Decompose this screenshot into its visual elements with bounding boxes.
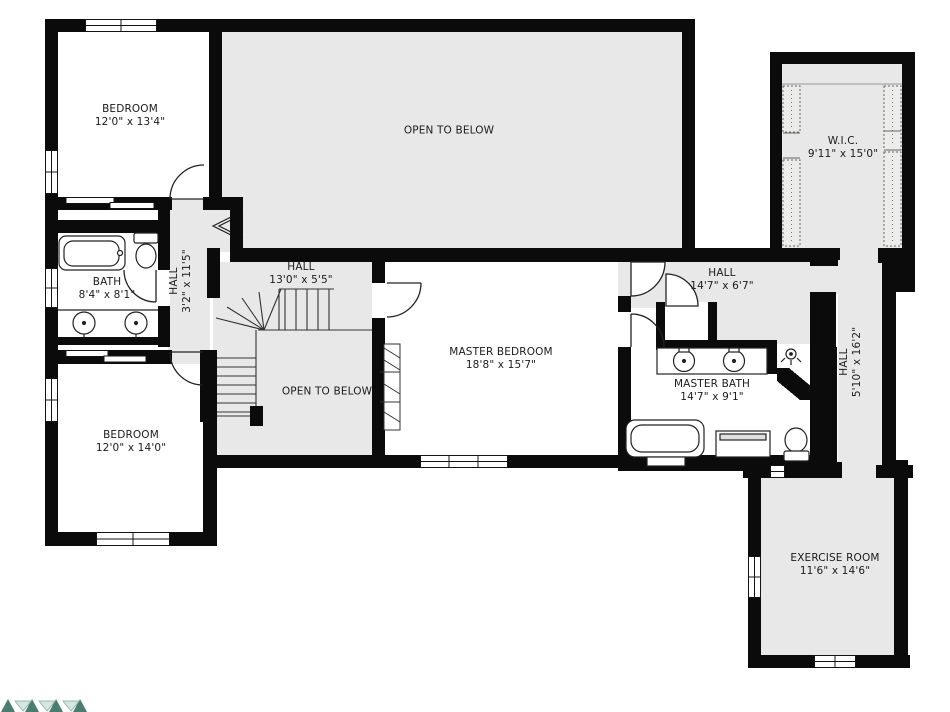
room-name: BEDROOM (95, 103, 165, 116)
room-label-master-bath: MASTER BATH 14'7" x 9'1" (674, 378, 750, 404)
room-label-master-bedroom: MASTER BEDROOM 18'8" x 15'7" (449, 346, 553, 372)
room-dims: 14'7" x 9'1" (674, 391, 750, 404)
toilet-icon (134, 233, 158, 268)
room-name: W.I.C. (808, 135, 878, 148)
room-dims: 3'2" x 11'5" (181, 249, 194, 313)
room-name: BATH (79, 276, 136, 289)
toilet-icon (784, 428, 809, 461)
room-label-hall-upper-left: HALL 3'2" x 11'5" (168, 249, 194, 313)
room-label-bedroom-1: BEDROOM 12'0" x 13'4" (95, 103, 165, 129)
room-label-wic: W.I.C. 9'11" x 15'0" (808, 135, 878, 161)
floor-plan-page: BEDROOM 12'0" x 13'4" OPEN TO BELOW W.I.… (0, 0, 950, 712)
window (86, 20, 157, 32)
window (97, 533, 170, 546)
room-dims: 8'4" x 8'1" (79, 289, 136, 302)
window (771, 466, 785, 478)
room-dims: 9'11" x 15'0" (808, 148, 878, 161)
room-name: OPEN TO BELOW (282, 386, 372, 399)
window (46, 269, 58, 308)
room-label-bedroom-2: BEDROOM 12'0" x 14'0" (96, 429, 166, 455)
watermark-logo (1, 699, 87, 712)
room-label-hall-right: HALL 14'7" x 6'7" (690, 267, 754, 293)
room-dims: 12'0" x 13'4" (95, 116, 165, 129)
room-name: OPEN TO BELOW (404, 125, 494, 138)
room-label-exercise-room: EXERCISE ROOM 11'6" x 14'6" (790, 552, 879, 578)
room-name: EXERCISE ROOM (790, 552, 879, 565)
window (749, 557, 761, 598)
room-label-open-to-below-top: OPEN TO BELOW (404, 125, 494, 138)
room-label-open-to-below-center: OPEN TO BELOW (282, 386, 372, 399)
room-dims: 14'7" x 6'7" (690, 280, 754, 293)
room-label-hall-center: HALL 13'0" x 5'5" (269, 261, 333, 287)
room-dims: 13'0" x 5'5" (269, 274, 333, 287)
room-dims: 5'10" x 16'2" (851, 327, 864, 397)
room-dims: 18'8" x 15'7" (449, 359, 553, 372)
room-label-bath: BATH 8'4" x 8'1" (79, 276, 136, 302)
cabinet (716, 431, 770, 457)
room-dims: 11'6" x 14'6" (790, 565, 879, 578)
room-name: MASTER BEDROOM (449, 346, 553, 359)
room-dims: 12'0" x 14'0" (96, 442, 166, 455)
room-label-hall-right-vertical: HALL 5'10" x 16'2" (838, 327, 864, 397)
bathtub-icon (59, 236, 125, 270)
room-name: HALL (690, 267, 754, 280)
room-name: HALL (269, 261, 333, 274)
room-name: HALL (838, 327, 851, 397)
window (46, 151, 58, 194)
window (46, 379, 58, 422)
window (815, 656, 856, 668)
room-name: HALL (168, 249, 181, 313)
window (421, 456, 508, 468)
room-name: MASTER BATH (674, 378, 750, 391)
room-name: BEDROOM (96, 429, 166, 442)
